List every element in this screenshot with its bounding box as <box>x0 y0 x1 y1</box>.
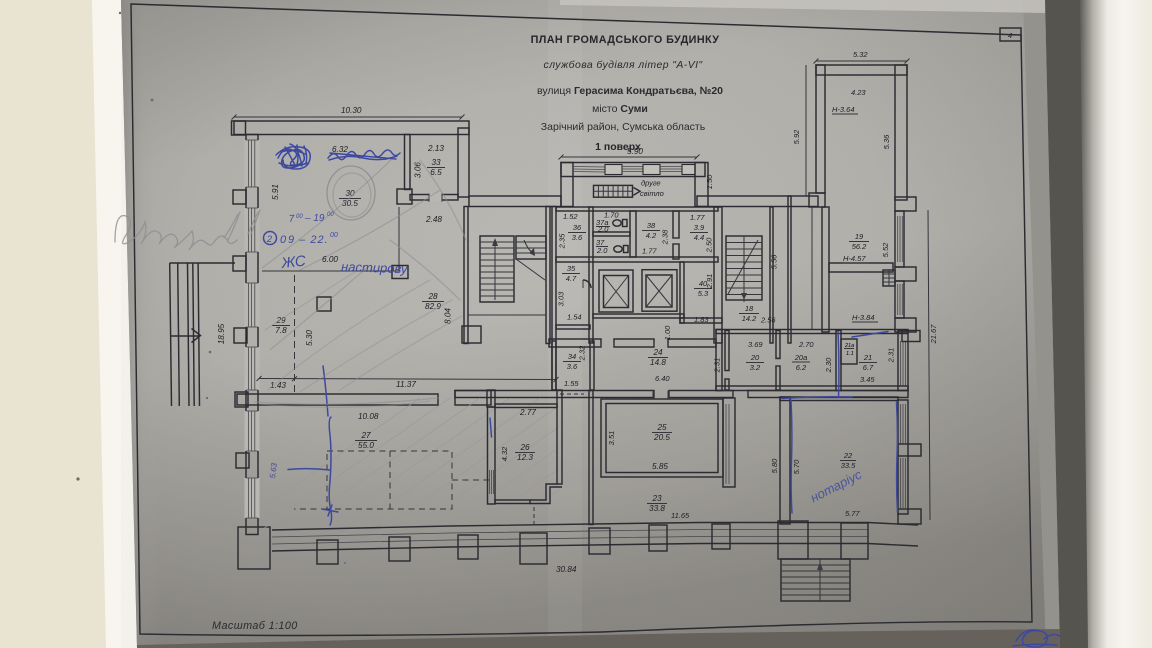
svg-text:21: 21 <box>863 353 872 362</box>
svg-text:00: 00 <box>327 212 334 218</box>
svg-text:1.55: 1.55 <box>564 379 579 388</box>
svg-text:25: 25 <box>656 423 667 432</box>
svg-text:1.52: 1.52 <box>563 212 578 221</box>
svg-text:3.2: 3.2 <box>750 363 761 372</box>
svg-text:3.69: 3.69 <box>748 340 763 349</box>
svg-text:2.70: 2.70 <box>798 340 814 349</box>
svg-text:5.3: 5.3 <box>698 289 709 298</box>
svg-text:14.8: 14.8 <box>650 358 666 367</box>
svg-text:27: 27 <box>360 431 371 440</box>
svg-text:4.2: 4.2 <box>646 231 657 240</box>
svg-text:Масштаб 1:100: Масштаб 1:100 <box>212 620 298 632</box>
svg-text:6.2: 6.2 <box>796 363 807 372</box>
svg-text:2.13: 2.13 <box>427 144 444 153</box>
svg-text:5.85: 5.85 <box>652 462 668 471</box>
svg-text:2.0: 2.0 <box>596 246 608 255</box>
svg-text:21.67: 21.67 <box>929 324 938 345</box>
svg-text:2.31: 2.31 <box>887 348 896 364</box>
svg-text:3.45: 3.45 <box>860 375 875 384</box>
svg-text:Н-3.64: Н-3.64 <box>832 105 855 114</box>
svg-text:2.50: 2.50 <box>705 237 714 253</box>
svg-text:20а: 20а <box>794 353 808 362</box>
svg-text:3.03: 3.03 <box>557 291 566 306</box>
svg-text:Н-4.57: Н-4.57 <box>843 254 866 263</box>
svg-text:5.90: 5.90 <box>627 147 643 156</box>
svg-text:4.32: 4.32 <box>500 446 509 461</box>
svg-text:55.0: 55.0 <box>358 441 374 450</box>
svg-text:00: 00 <box>330 232 338 239</box>
svg-text:0: 0 <box>280 234 287 246</box>
svg-text:5.52: 5.52 <box>881 242 890 257</box>
svg-text:5.30: 5.30 <box>305 330 314 346</box>
svg-text:5.92: 5.92 <box>792 129 801 144</box>
svg-text:2.31: 2.31 <box>713 358 722 374</box>
svg-text:місто Суми: місто Суми <box>592 103 648 115</box>
svg-text:5.32: 5.32 <box>853 50 868 59</box>
svg-text:– 19: – 19 <box>304 213 325 224</box>
svg-text:18.95: 18.95 <box>217 323 226 344</box>
svg-text:34: 34 <box>568 352 576 361</box>
svg-text:6.00: 6.00 <box>322 255 338 264</box>
svg-text:3.9: 3.9 <box>694 223 705 232</box>
svg-text:світло: світло <box>640 189 664 198</box>
svg-text:2.32: 2.32 <box>578 345 587 361</box>
svg-text:5.80: 5.80 <box>770 458 779 473</box>
svg-text:2.77: 2.77 <box>519 408 536 417</box>
svg-text:33.8: 33.8 <box>649 504 665 513</box>
svg-text:вулиця Герасима Кондратьєва,: вулиця Герасима Кондратьєва, №20 <box>537 85 723 97</box>
svg-text:10.30: 10.30 <box>341 106 362 115</box>
svg-text:38: 38 <box>647 221 656 230</box>
svg-text:22: 22 <box>843 451 853 460</box>
svg-text:12.3: 12.3 <box>517 453 533 462</box>
svg-text:28: 28 <box>427 292 438 301</box>
svg-text:4.7: 4.7 <box>566 274 577 283</box>
svg-text:2.48: 2.48 <box>425 215 442 224</box>
svg-text:Зарічний район, Сумська област: Зарічний район, Сумська область <box>541 121 706 133</box>
svg-text:друге: друге <box>641 179 661 188</box>
svg-text:20.5: 20.5 <box>653 433 670 442</box>
svg-text:6.5: 6.5 <box>430 168 442 177</box>
svg-text:5.56: 5.56 <box>770 254 779 269</box>
svg-text:ПЛАН ГРОМАДСЬКОГО БУДИНКУ: ПЛАН ГРОМАДСЬКОГО БУДИНКУ <box>531 34 720 46</box>
svg-text:3.06: 3.06 <box>414 162 423 178</box>
svg-text:Н-3.84: Н-3.84 <box>852 313 875 322</box>
svg-text:2: 2 <box>266 234 272 244</box>
svg-text:4: 4 <box>1008 31 1012 40</box>
svg-text:5.36: 5.36 <box>882 134 891 149</box>
svg-text:30.5: 30.5 <box>342 199 358 208</box>
svg-text:4.23: 4.23 <box>851 88 866 97</box>
svg-text:5.77: 5.77 <box>845 509 860 518</box>
svg-text:2.91: 2.91 <box>705 274 714 290</box>
svg-text:службова будівля літер "А-VІ": службова будівля літер "А-VІ" <box>543 59 703 71</box>
svg-text:1.77: 1.77 <box>690 213 705 222</box>
svg-text:2.56: 2.56 <box>760 316 776 325</box>
svg-text:9 – 22.: 9 – 22. <box>288 234 329 246</box>
svg-text:5.70: 5.70 <box>792 459 801 474</box>
svg-text:56.2: 56.2 <box>852 242 867 251</box>
svg-text:35: 35 <box>567 264 576 273</box>
svg-text:ЖС: ЖС <box>280 253 307 273</box>
svg-text:24: 24 <box>652 348 663 357</box>
svg-text:14.2: 14.2 <box>742 314 757 323</box>
svg-text:33: 33 <box>431 158 441 167</box>
svg-text:5.91: 5.91 <box>271 184 280 200</box>
svg-text:6.7: 6.7 <box>863 363 874 372</box>
svg-text:1.00: 1.00 <box>663 325 672 340</box>
svg-text:2.0: 2.0 <box>597 225 609 234</box>
svg-text:1.83: 1.83 <box>694 315 709 324</box>
svg-text:2.38: 2.38 <box>661 229 670 245</box>
svg-text:36: 36 <box>573 223 582 232</box>
svg-text:26: 26 <box>519 443 530 452</box>
svg-text:18: 18 <box>745 304 754 313</box>
svg-text:6.40: 6.40 <box>655 374 670 383</box>
svg-text:3.51: 3.51 <box>607 431 616 446</box>
svg-text:1.50: 1.50 <box>705 174 714 189</box>
svg-text:3.6: 3.6 <box>572 233 583 242</box>
svg-text:7.8: 7.8 <box>275 326 287 335</box>
svg-text:19: 19 <box>855 232 864 241</box>
svg-text:11.37: 11.37 <box>396 380 416 389</box>
svg-text:30.84: 30.84 <box>556 565 577 574</box>
svg-text:1.1: 1.1 <box>846 351 854 357</box>
svg-text:4.4: 4.4 <box>694 233 704 242</box>
svg-text:2.35: 2.35 <box>558 233 567 249</box>
svg-text:23: 23 <box>651 494 662 503</box>
svg-text:2.30: 2.30 <box>824 357 833 373</box>
svg-text:11.65: 11.65 <box>671 511 690 520</box>
svg-text:3.6: 3.6 <box>567 362 578 371</box>
svg-text:настирову.: настирову. <box>341 259 410 276</box>
svg-text:10.08: 10.08 <box>358 412 379 421</box>
svg-text:20: 20 <box>750 353 760 362</box>
svg-text:00: 00 <box>296 214 303 220</box>
svg-text:6.32: 6.32 <box>332 145 348 154</box>
svg-text:1.77: 1.77 <box>642 247 657 256</box>
svg-text:1.54: 1.54 <box>567 313 582 322</box>
